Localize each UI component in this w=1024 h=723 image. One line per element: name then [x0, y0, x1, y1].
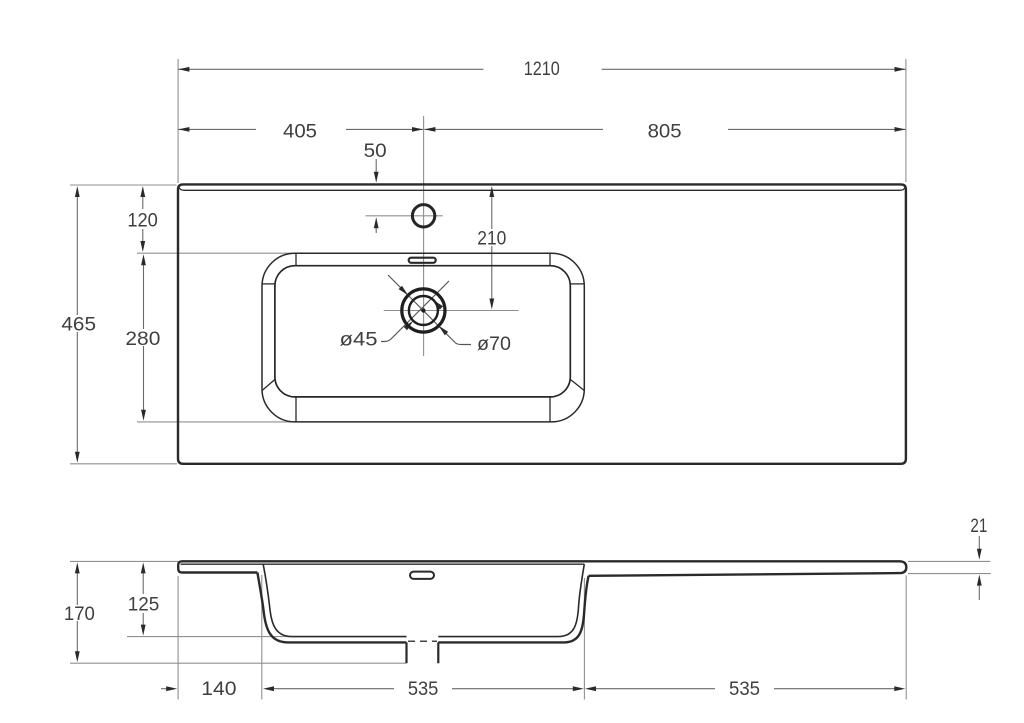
svg-text:535: 535: [729, 678, 760, 700]
svg-text:120: 120: [127, 209, 158, 231]
svg-text:280: 280: [125, 328, 160, 350]
svg-text:405: 405: [283, 120, 317, 142]
svg-text:140: 140: [201, 678, 236, 700]
svg-text:535: 535: [408, 678, 439, 700]
svg-text:805: 805: [648, 120, 682, 142]
svg-text:21: 21: [970, 515, 987, 537]
svg-text:ø45: ø45: [340, 328, 378, 350]
svg-text:ø70: ø70: [477, 333, 511, 355]
svg-text:125: 125: [128, 594, 160, 616]
svg-text:50: 50: [364, 140, 387, 162]
svg-text:170: 170: [64, 603, 95, 625]
svg-text:210: 210: [477, 227, 506, 249]
svg-text:465: 465: [61, 314, 96, 336]
svg-text:1210: 1210: [524, 58, 560, 80]
